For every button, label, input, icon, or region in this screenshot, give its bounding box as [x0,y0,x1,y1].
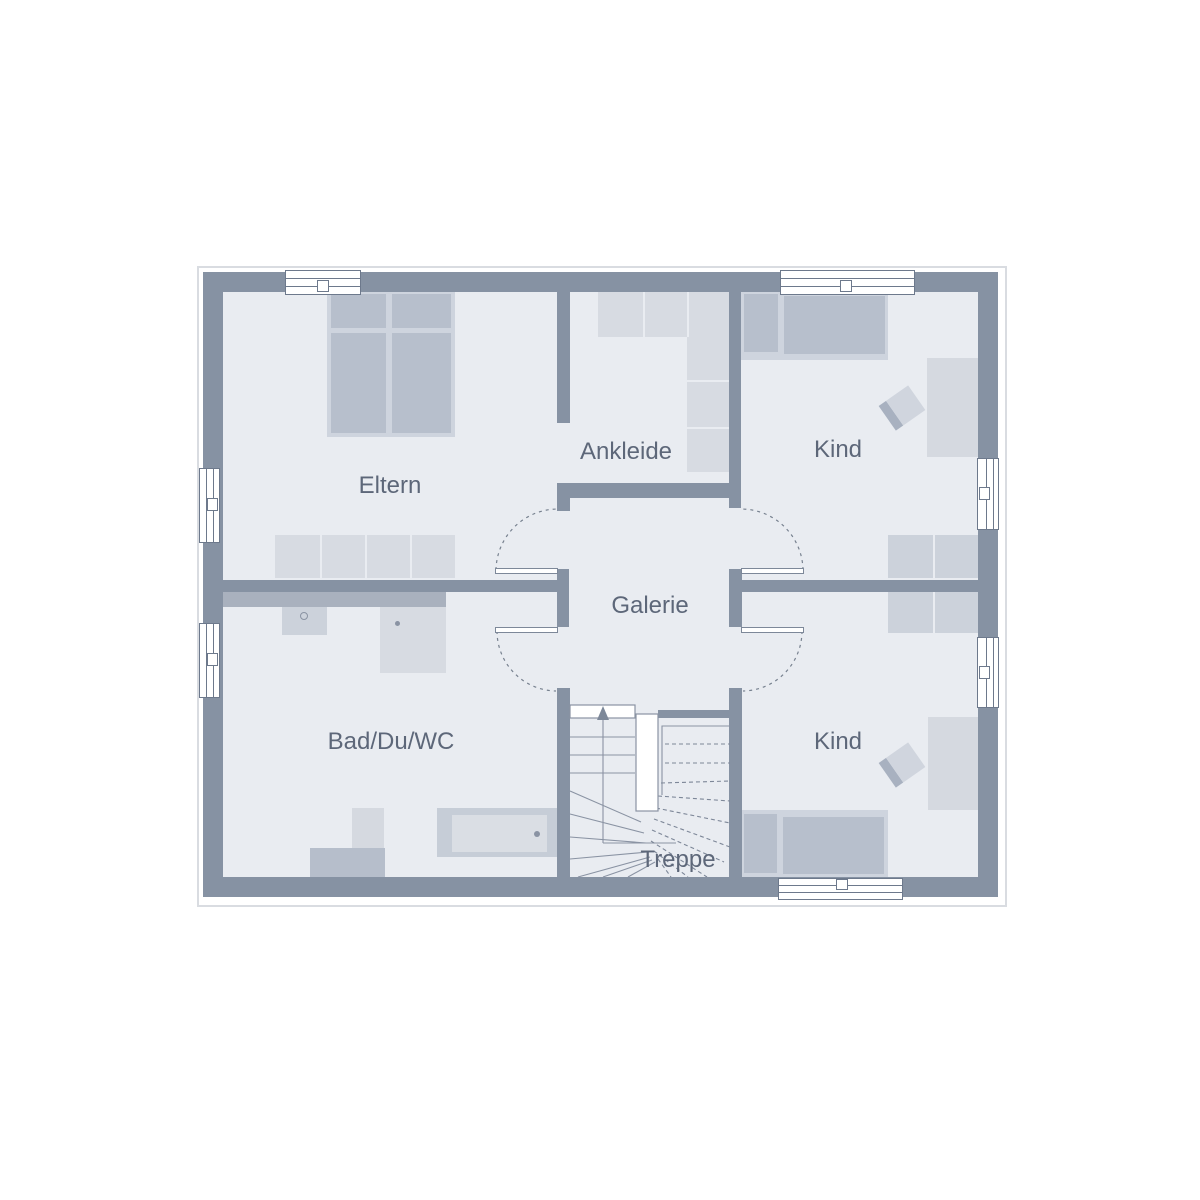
window-left-bad [199,623,220,698]
shower [380,607,446,673]
window-right-kind [977,458,999,530]
wall-outer-left [203,272,223,897]
wall-eltern-bottom [223,580,568,592]
wall-galerie-right [729,569,742,627]
room-label-bad: Bad/Du/WC [328,728,455,756]
wall-ankleide-bottom [557,483,741,498]
child-wardrobe [888,535,978,578]
room-label-ankleide: Ankleide [580,438,672,466]
bed-pillow [744,294,778,352]
bed-pillow [392,294,451,328]
room-label-kind-top: Kind [814,436,862,464]
wall-outer-right [978,272,998,897]
child-desk [927,358,978,457]
bed-mattress [331,333,386,433]
wall-galerie-left [557,569,569,627]
door-leaf-bad [495,627,558,633]
window-top-left [285,270,361,295]
bed-mattress [784,296,885,354]
door-leaf-kind [741,568,804,574]
child2-wardrobe [888,592,978,633]
bed-mattress [392,333,451,433]
shower-drain-icon [395,621,400,626]
dressing-wardrobe-top [598,292,730,337]
toilet-cistern [310,848,385,877]
wall-ankleide-kind [729,292,741,508]
faucet-icon [300,612,308,620]
door-leaf-eltern [495,568,558,574]
window-bottom [778,878,903,900]
wall-eltern-ankleide [557,292,570,423]
window-top-right [780,270,915,295]
wall-stairs-left [557,688,570,877]
bed-mattress [783,817,884,874]
child2-desk [928,717,978,810]
bed-pillow [744,814,777,873]
room-label-treppe: Treppe [640,846,715,874]
room-label-galerie: Galerie [611,592,688,620]
bathtub-drain-icon [534,831,540,837]
wall-stairs-right [729,688,742,877]
room-label-kind-bottom: Kind [814,728,862,756]
toilet-bowl [352,808,384,848]
bed-pillow [331,294,386,328]
parents-wardrobe [275,535,455,578]
bathtub-inner [452,815,547,852]
door-leaf-kind2 [741,627,804,633]
room-label-eltern: Eltern [359,472,422,500]
window-left-eltern [199,468,220,543]
dressing-wardrobe-side [687,337,730,472]
floor-plan-page: Eltern Ankleide Kind Galerie Bad/Du/WC K… [0,0,1200,1200]
bath-counter [223,592,446,607]
wall-kind-divider [729,580,978,592]
window-right-kind2 [977,637,999,708]
wall-stub [557,498,570,511]
